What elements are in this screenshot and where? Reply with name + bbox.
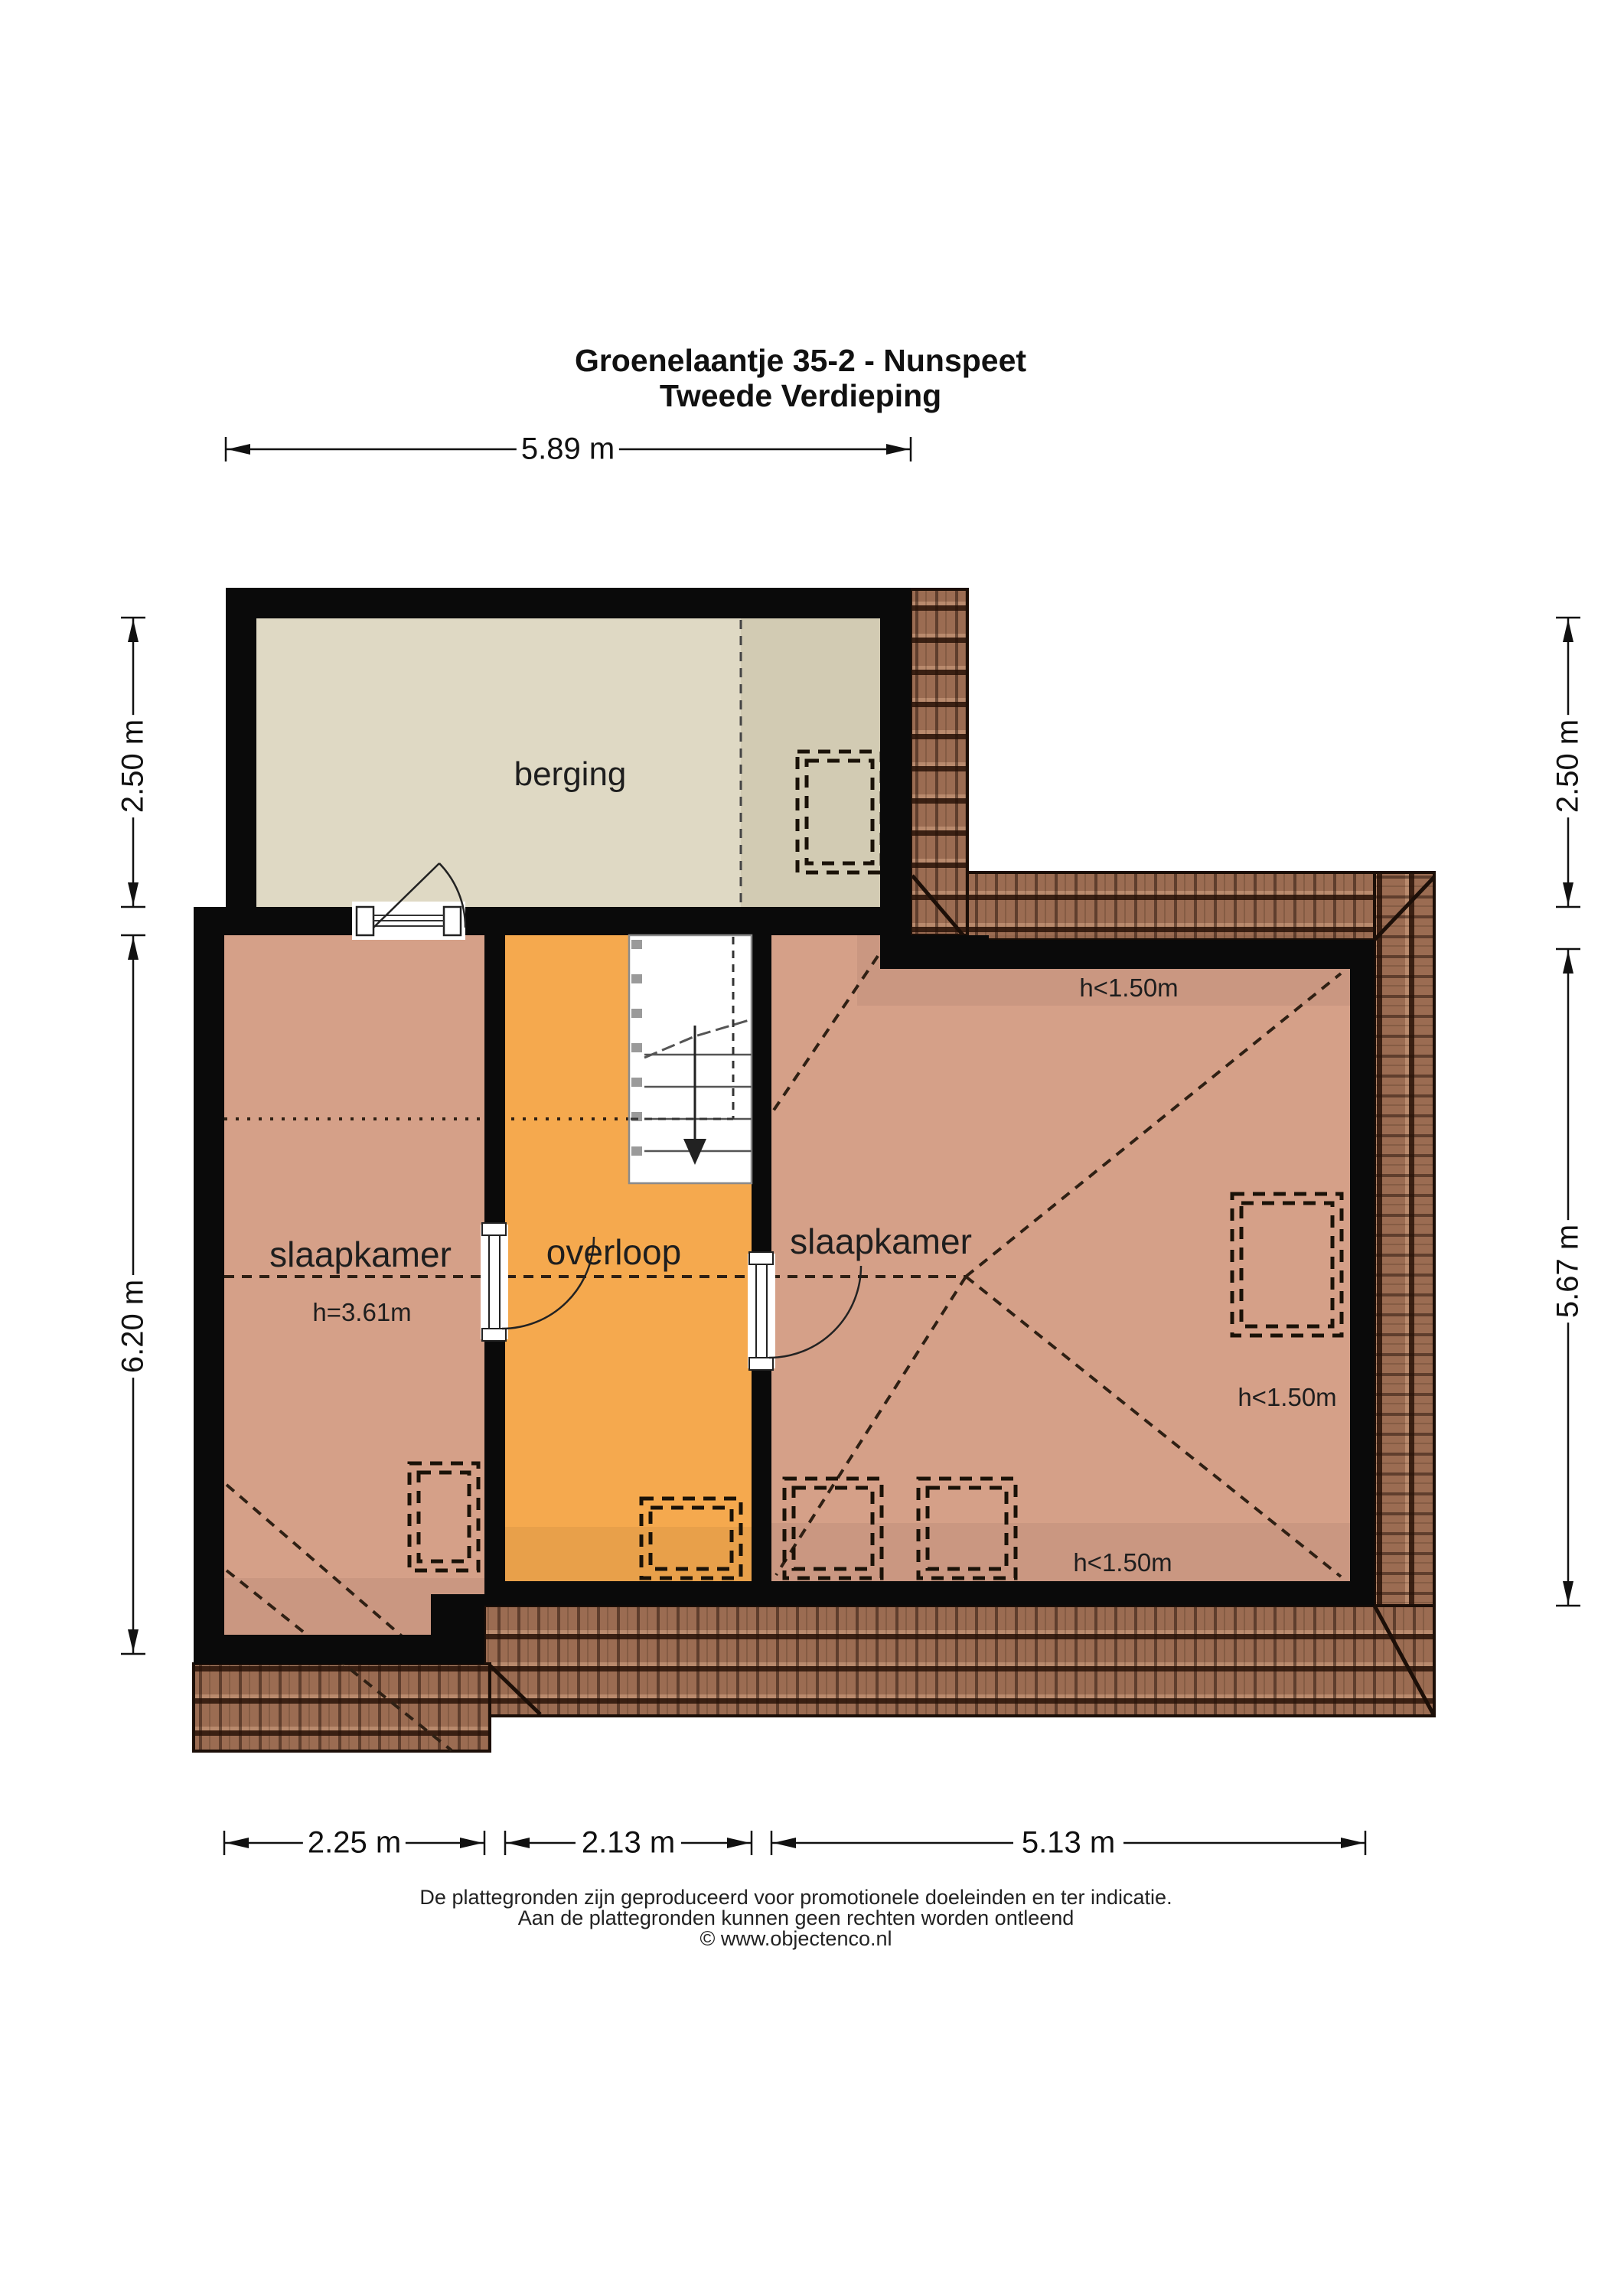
- floorplan-page: { "title": { "line1": "Groenelaantje 35-…: [0, 0, 1624, 2296]
- room-label-landing: overloop: [546, 1231, 681, 1273]
- disclaimer-line-2: Aan de plattegronden kunnen geen rechten…: [419, 1908, 1172, 1929]
- dim-label-bottom-left: 2.25 m: [303, 1826, 406, 1861]
- dim-label-left-upper: 2.50 m: [116, 715, 151, 817]
- dim-label-top: 5.89 m: [517, 432, 619, 467]
- plan-title: Groenelaantje 35-2 - Nunspeet Tweede Ver…: [575, 343, 1026, 413]
- dim-label-right-lower: 5.67 m: [1551, 1220, 1586, 1322]
- height-label-attic-right: h<1.50m: [1238, 1383, 1336, 1412]
- dim-label-right-upper: 2.50 m: [1551, 715, 1586, 817]
- dim-label-bottom-right: 5.13 m: [1017, 1826, 1120, 1861]
- disclaimer-line-1: De plattegronden zijn geproduceerd voor …: [419, 1887, 1172, 1908]
- title-floor: Tweede Verdieping: [575, 378, 1026, 413]
- height-label-attic-top: h<1.50m: [1079, 974, 1178, 1003]
- dim-label-bottom-middle: 2.13 m: [577, 1826, 680, 1861]
- height-label-attic-bottom: h<1.50m: [1073, 1548, 1172, 1577]
- room-label-bedroom-left: slaapkamer: [269, 1234, 452, 1275]
- disclaimer-line-3: © www.objectenco.nl: [419, 1929, 1172, 1949]
- roof-band-bottom-left: [194, 1664, 490, 1751]
- roof-band-right: [1375, 872, 1434, 1716]
- staircase: [629, 935, 752, 1183]
- room-label-storage: berging: [514, 755, 627, 794]
- dim-label-left-lower: 6.20 m: [116, 1275, 151, 1378]
- room-bedroom-left-floor: [224, 935, 484, 1635]
- title-address: Groenelaantje 35-2 - Nunspeet: [575, 343, 1026, 378]
- roof-band-bottom: [484, 1606, 1434, 1716]
- roof-band-top-right: [967, 872, 1434, 940]
- disclaimer: De plattegronden zijn geproduceerd voor …: [419, 1887, 1172, 1949]
- height-label-bedroom-left: h=3.61m: [312, 1298, 411, 1327]
- room-label-bedroom-right: slaapkamer: [790, 1221, 972, 1262]
